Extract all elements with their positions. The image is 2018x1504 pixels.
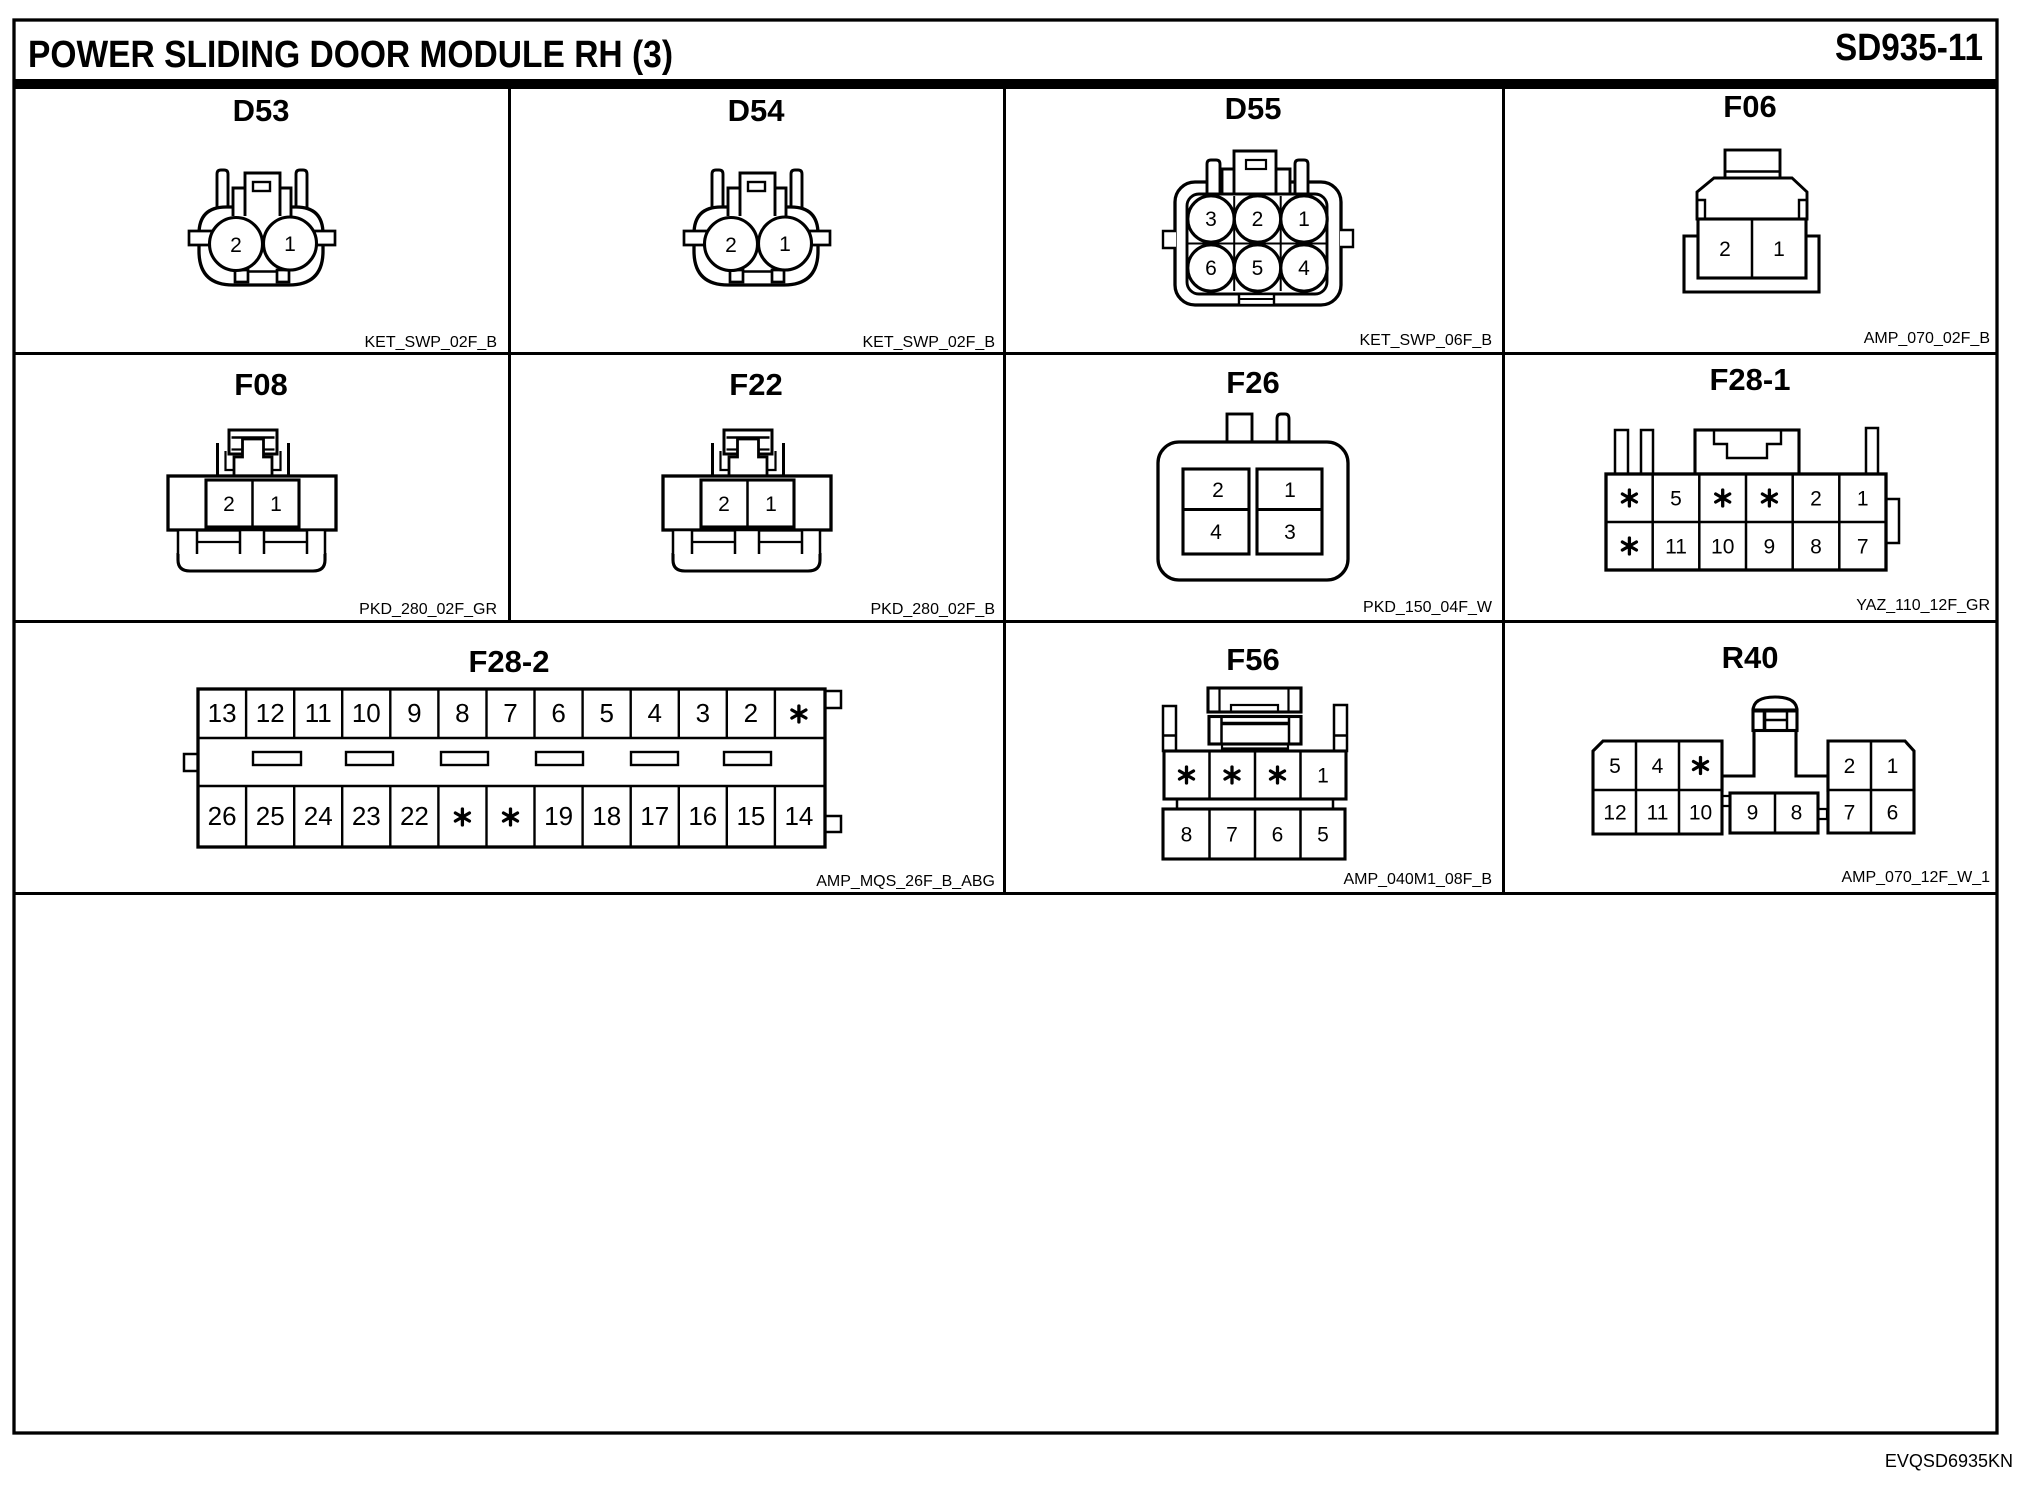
svg-text:8: 8 (455, 698, 469, 728)
svg-text:1: 1 (284, 233, 296, 256)
svg-text:6: 6 (1205, 257, 1217, 280)
svg-text:7: 7 (1844, 802, 1856, 825)
svg-text:18: 18 (592, 801, 621, 831)
svg-text:13: 13 (208, 698, 237, 728)
svg-text:19: 19 (544, 801, 573, 831)
svg-text:2: 2 (1252, 208, 1264, 231)
svg-text:2: 2 (718, 493, 730, 516)
svg-text:PKD_150_04F_W: PKD_150_04F_W (1363, 599, 1493, 616)
svg-text:PKD_280_02F_GR: PKD_280_02F_GR (359, 601, 497, 618)
svg-text:F28-1: F28-1 (1710, 362, 1791, 397)
svg-text:8: 8 (1791, 802, 1803, 825)
svg-text:25: 25 (256, 801, 285, 831)
svg-text:KET_SWP_02F_B: KET_SWP_02F_B (365, 334, 498, 351)
svg-text:8: 8 (1810, 536, 1822, 559)
svg-text:23: 23 (352, 801, 381, 831)
svg-text:3: 3 (1205, 208, 1217, 231)
svg-text:7: 7 (1857, 536, 1869, 559)
svg-text:KET_SWP_06F_B: KET_SWP_06F_B (1360, 332, 1493, 349)
svg-text:5: 5 (1670, 488, 1682, 511)
svg-text:17: 17 (640, 801, 669, 831)
svg-text:7: 7 (1226, 824, 1238, 847)
svg-text:4: 4 (1298, 257, 1310, 280)
svg-text:AMP_MQS_26F_B_ABG: AMP_MQS_26F_B_ABG (816, 873, 995, 890)
svg-text:D53: D53 (233, 93, 290, 128)
svg-text:24: 24 (304, 801, 333, 831)
svg-text:5: 5 (1609, 755, 1621, 778)
svg-text:F08: F08 (234, 367, 287, 402)
svg-text:2: 2 (744, 698, 758, 728)
svg-text:11: 11 (1665, 536, 1687, 559)
svg-text:3: 3 (1284, 521, 1296, 544)
svg-text:F22: F22 (729, 367, 782, 402)
svg-text:1: 1 (1773, 238, 1785, 261)
svg-text:15: 15 (736, 801, 765, 831)
svg-text:R40: R40 (1722, 640, 1779, 675)
svg-text:2: 2 (1844, 755, 1856, 778)
svg-text:5: 5 (599, 698, 613, 728)
svg-text:EVQSD6935KN: EVQSD6935KN (1885, 1451, 2013, 1471)
svg-text:1: 1 (1284, 479, 1296, 502)
svg-text:SD935-11: SD935-11 (1835, 27, 1983, 69)
svg-text:KET_SWP_02F_B: KET_SWP_02F_B (863, 334, 996, 351)
svg-text:10: 10 (1689, 802, 1712, 825)
svg-text:10: 10 (1711, 536, 1734, 559)
svg-text:F26: F26 (1226, 365, 1279, 400)
svg-text:10: 10 (352, 698, 381, 728)
svg-text:4: 4 (1210, 521, 1222, 544)
svg-text:1: 1 (1298, 208, 1310, 231)
svg-text:POWER SLIDING DOOR MODULE RH (: POWER SLIDING DOOR MODULE RH (3) (28, 34, 673, 76)
svg-text:YAZ_110_12F_GR: YAZ_110_12F_GR (1856, 597, 1990, 614)
svg-text:2: 2 (1719, 238, 1731, 261)
svg-text:2: 2 (1212, 479, 1224, 502)
svg-text:AMP_070_12F_W_1: AMP_070_12F_W_1 (1841, 869, 1990, 886)
svg-text:4: 4 (647, 698, 661, 728)
svg-text:AMP_070_02F_B: AMP_070_02F_B (1864, 330, 1990, 347)
svg-text:12: 12 (256, 698, 285, 728)
svg-text:9: 9 (407, 698, 421, 728)
svg-text:2: 2 (230, 234, 242, 257)
svg-text:4: 4 (1652, 755, 1664, 778)
svg-text:2: 2 (725, 234, 737, 257)
svg-text:PKD_280_02F_B: PKD_280_02F_B (870, 601, 995, 618)
svg-text:6: 6 (1272, 824, 1284, 847)
svg-text:16: 16 (688, 801, 717, 831)
svg-text:5: 5 (1252, 257, 1264, 280)
svg-text:D55: D55 (1225, 91, 1282, 126)
svg-text:5: 5 (1317, 824, 1329, 847)
svg-text:6: 6 (1887, 802, 1899, 825)
svg-text:7: 7 (503, 698, 517, 728)
svg-text:1: 1 (765, 493, 777, 516)
svg-text:9: 9 (1764, 536, 1776, 559)
svg-text:2: 2 (223, 493, 235, 516)
svg-text:8: 8 (1181, 824, 1193, 847)
svg-text:9: 9 (1747, 802, 1759, 825)
svg-text:22: 22 (400, 801, 429, 831)
svg-text:2: 2 (1810, 488, 1822, 511)
svg-text:11: 11 (1647, 802, 1669, 825)
svg-text:1: 1 (270, 493, 282, 516)
svg-text:14: 14 (784, 801, 813, 831)
svg-text:1: 1 (779, 233, 791, 256)
svg-text:F28-2: F28-2 (469, 644, 550, 679)
svg-text:3: 3 (696, 698, 710, 728)
svg-text:1: 1 (1317, 765, 1329, 788)
svg-text:26: 26 (208, 801, 237, 831)
svg-text:12: 12 (1603, 802, 1626, 825)
svg-text:D54: D54 (728, 93, 786, 128)
svg-text:F56: F56 (1226, 642, 1279, 677)
svg-text:F06: F06 (1723, 89, 1776, 124)
svg-text:11: 11 (305, 698, 332, 728)
svg-text:6: 6 (551, 698, 565, 728)
svg-text:1: 1 (1857, 488, 1869, 511)
svg-text:1: 1 (1887, 755, 1899, 778)
svg-text:AMP_040M1_08F_B: AMP_040M1_08F_B (1343, 871, 1492, 888)
